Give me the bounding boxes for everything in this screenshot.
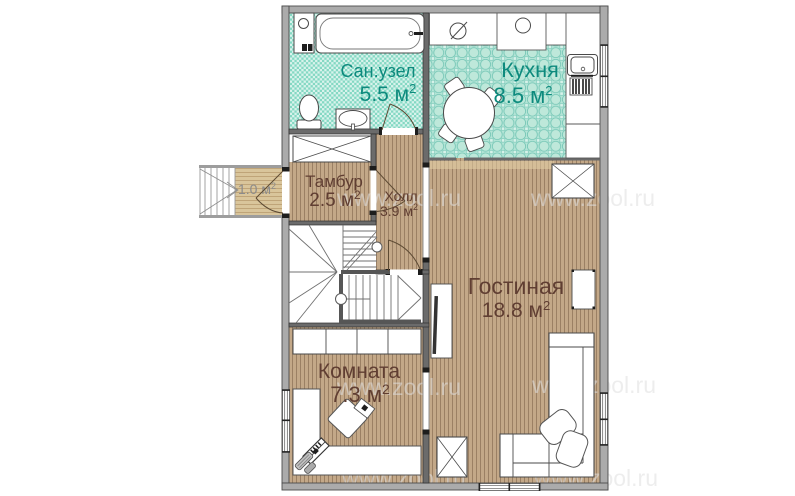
svg-text:8.5 м2: 8.5 м2: [493, 83, 552, 108]
svg-text:3.9 м2: 3.9 м2: [380, 202, 418, 219]
svg-text:Гостиная: Гостиная: [468, 273, 565, 299]
svg-text:Комната: Комната: [318, 360, 401, 383]
svg-text:18.8 м2: 18.8 м2: [482, 298, 550, 322]
svg-text:7.3 м2: 7.3 м2: [330, 381, 390, 407]
svg-text:2.5 м2: 2.5 м2: [309, 188, 361, 211]
svg-text:5.5 м2: 5.5 м2: [360, 81, 417, 106]
svg-text:Сан.узел: Сан.узел: [340, 61, 415, 81]
svg-text:Кухня: Кухня: [501, 58, 559, 82]
